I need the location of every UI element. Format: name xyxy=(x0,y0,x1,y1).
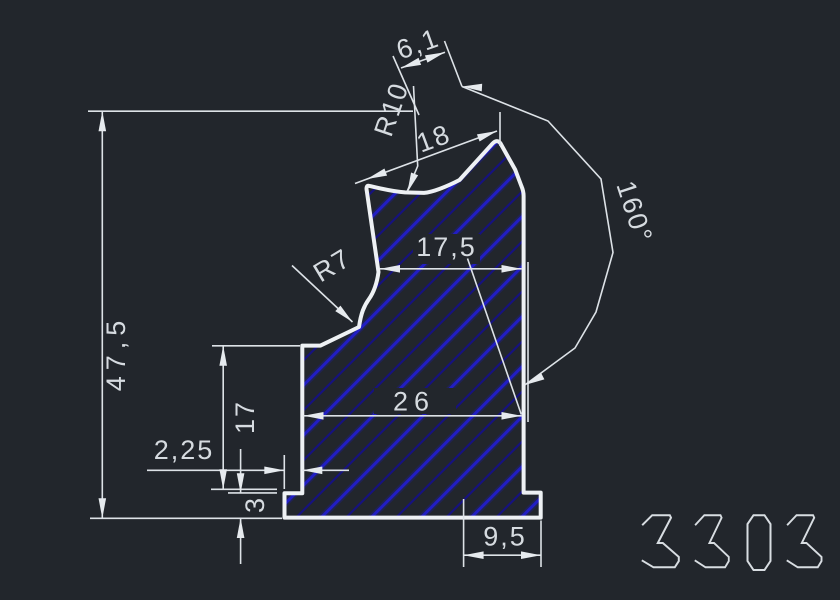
svg-text:9,5: 9,5 xyxy=(483,522,527,552)
svg-text:3: 3 xyxy=(240,496,270,513)
svg-text:47,5: 47,5 xyxy=(101,315,131,392)
svg-text:17: 17 xyxy=(230,400,260,434)
svg-text:2,25: 2,25 xyxy=(154,435,215,465)
svg-text:17,5: 17,5 xyxy=(416,232,477,262)
svg-text:26: 26 xyxy=(393,387,435,417)
